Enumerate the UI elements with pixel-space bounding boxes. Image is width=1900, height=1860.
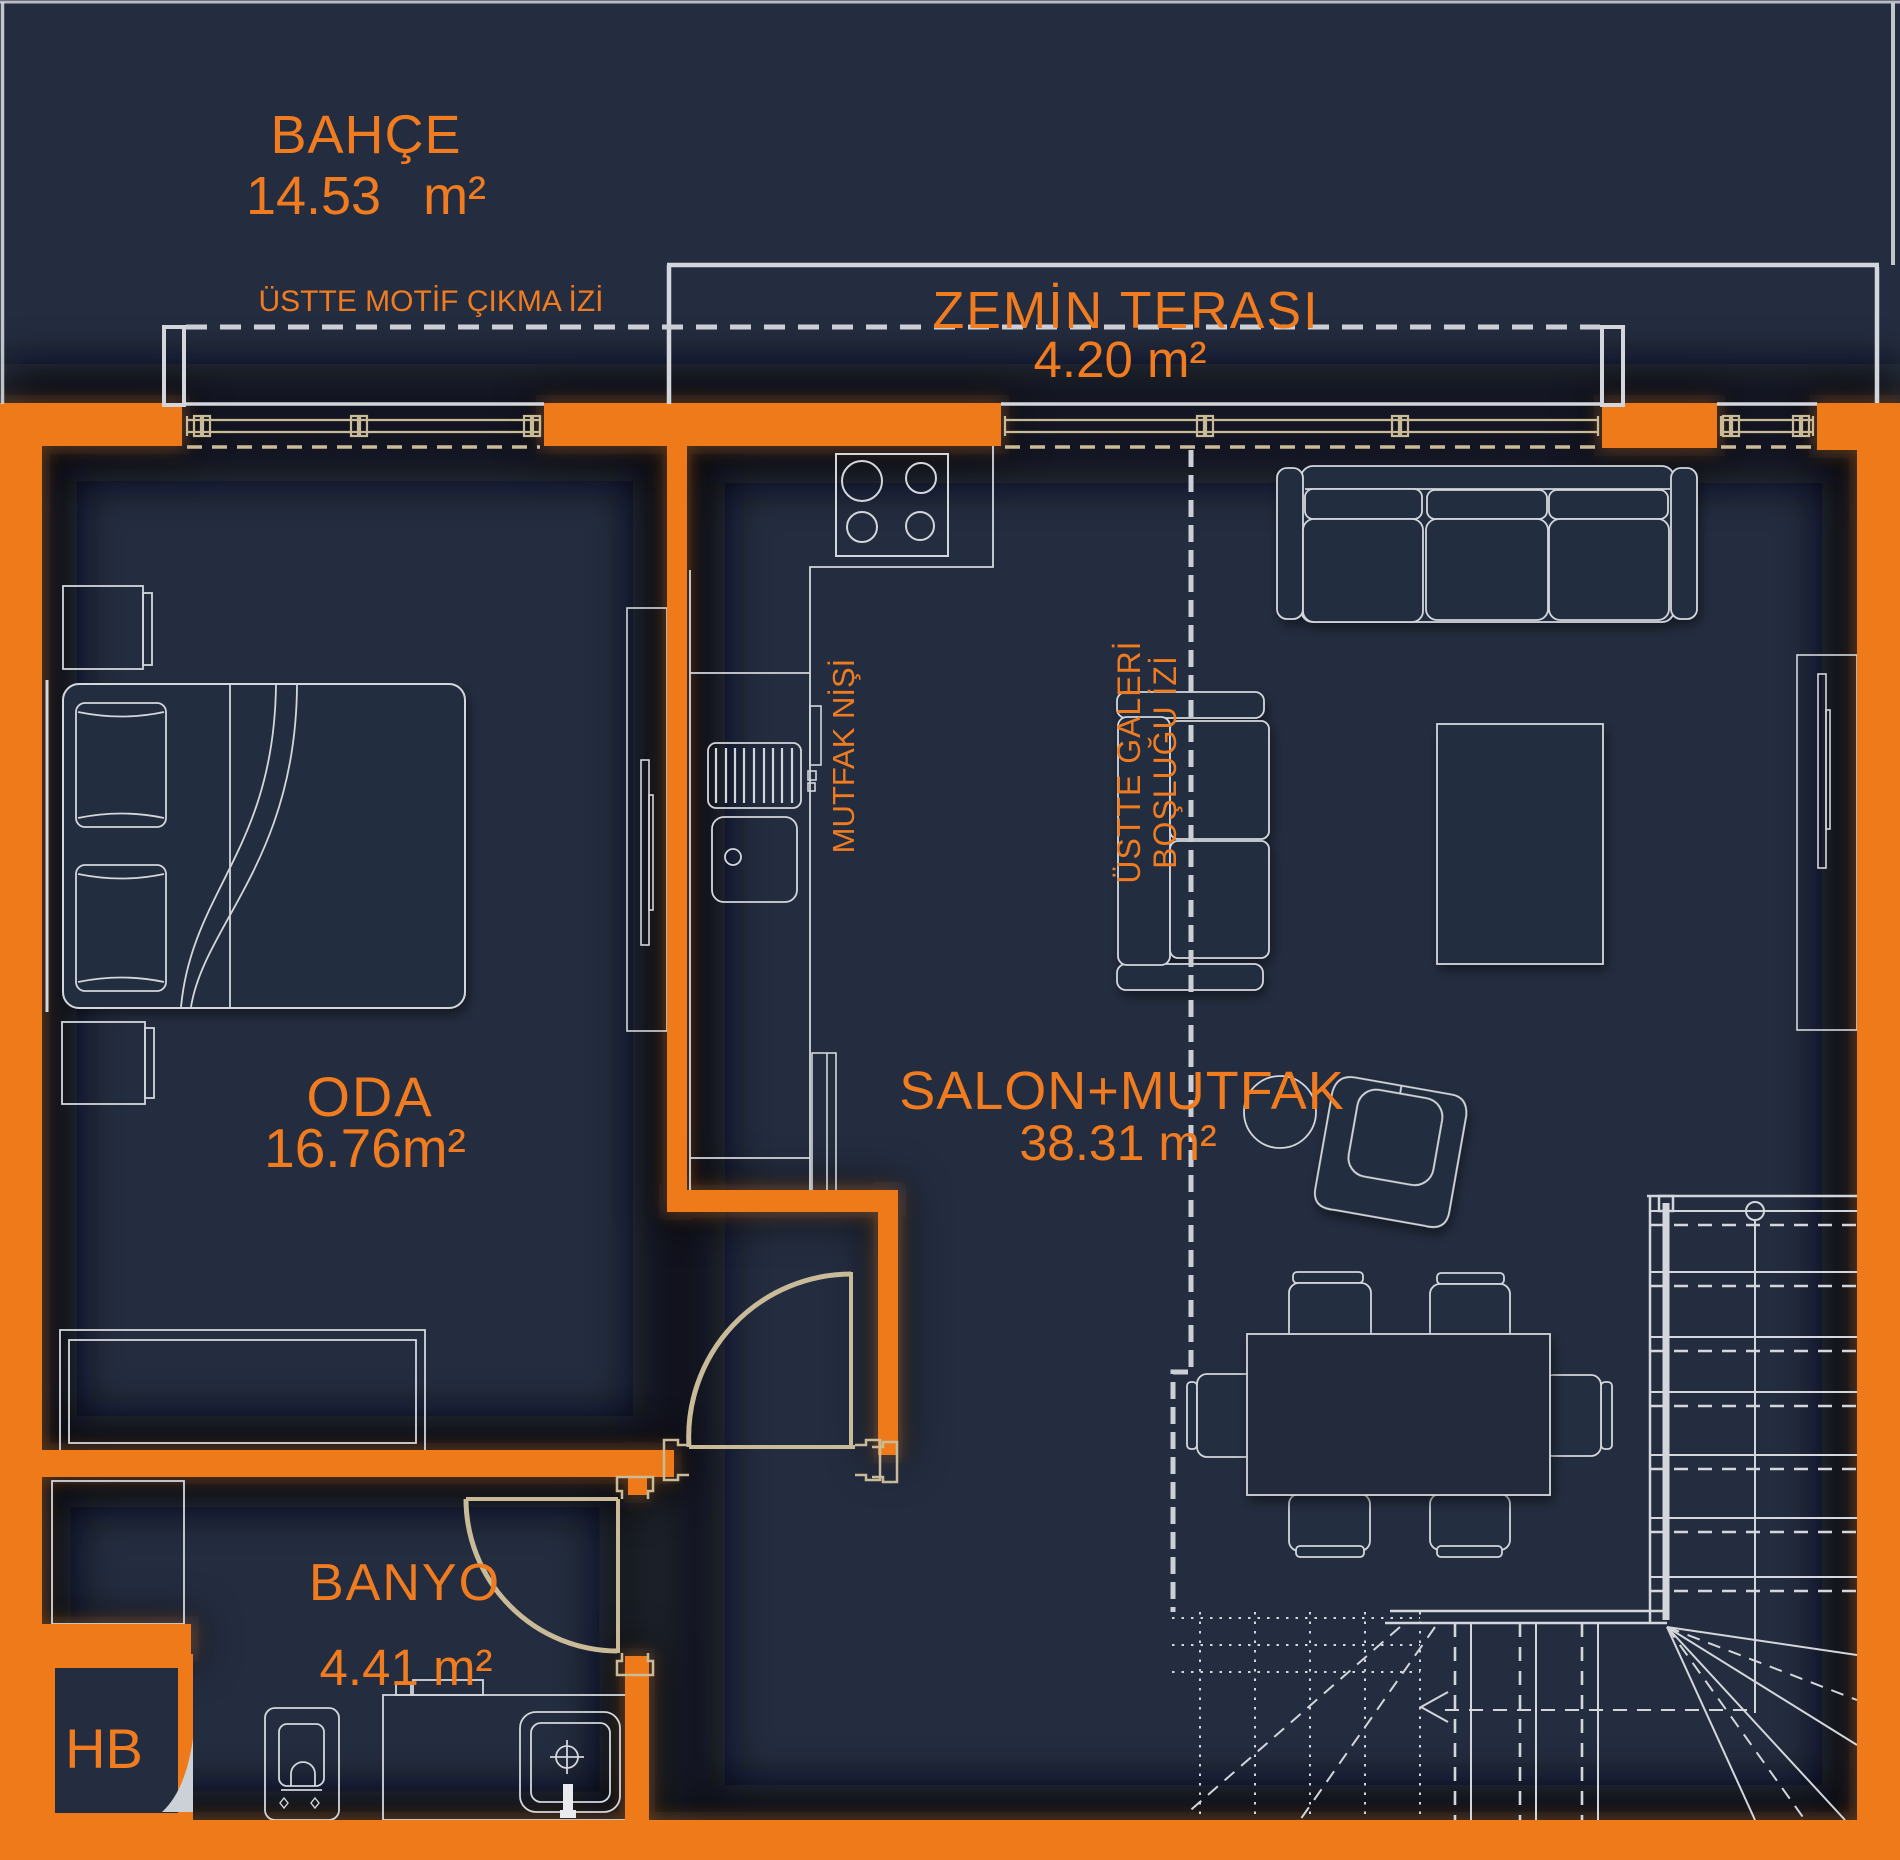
svg-text:HB: HB <box>65 1717 143 1780</box>
svg-text:ÜSTTE GALERİ: ÜSTTE GALERİ <box>1111 640 1147 883</box>
svg-text:BOŞLUĞU İZİ: BOŞLUĞU İZİ <box>1147 655 1183 869</box>
svg-text:MUTFAK NİŞİ: MUTFAK NİŞİ <box>826 659 861 854</box>
svg-text:4.41 m²: 4.41 m² <box>320 1639 493 1696</box>
svg-text:ÜSTTE MOTİF ÇIKMA İZİ: ÜSTTE MOTİF ÇIKMA İZİ <box>259 285 604 318</box>
svg-text:4.20 m²: 4.20 m² <box>1034 331 1207 388</box>
svg-text:BANYO: BANYO <box>309 1554 501 1612</box>
svg-text:BAHÇE: BAHÇE <box>270 105 461 165</box>
svg-text:14.53 m²: 14.53 m² <box>246 166 486 226</box>
svg-text:38.31 m²: 38.31 m² <box>1019 1115 1216 1171</box>
svg-text:16.76m²: 16.76m² <box>264 1117 466 1179</box>
svg-text:SALON+MUTFAK: SALON+MUTFAK <box>899 1061 1345 1121</box>
